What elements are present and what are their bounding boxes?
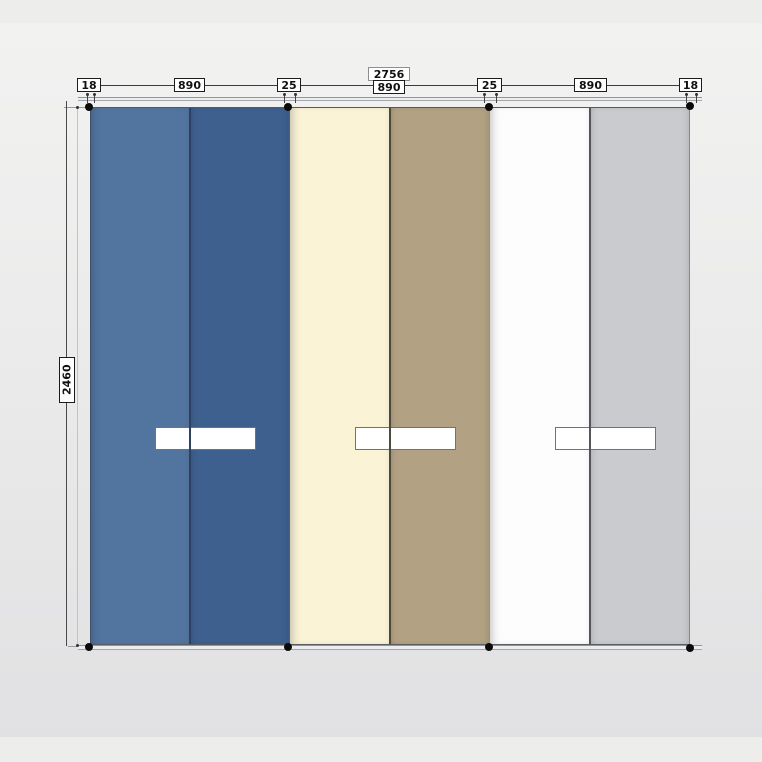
dimension-tick [87,93,88,103]
dimension-tick [295,93,296,103]
door-1-left-panel[interactable] [90,108,190,644]
dimension-tick [696,93,697,103]
corner-marker-dot [85,643,93,651]
corner-marker-dot [686,102,694,110]
top-rail [78,97,702,101]
corner-marker-dot [284,103,292,111]
door-1-center-seam [189,107,191,645]
corner-marker-dot [686,644,694,652]
door-1-handle-right [190,427,256,450]
extension-dot [76,106,79,109]
extension-dot [76,644,79,647]
dim-segment-door2: 890 [373,80,405,94]
door-2-left-panel[interactable] [290,108,390,644]
door-3-left-panel[interactable] [490,108,590,644]
dim-total-height: 2460 [59,357,75,403]
dim-segment-left-gap: 18 [77,78,101,92]
corner-marker-dot [284,643,292,651]
corner-marker-dot [485,643,493,651]
frame-right-edge [689,108,690,644]
bottom-rail [78,645,702,650]
door-gap-edge [289,108,290,644]
dim-segment-overlap1: 25 [277,78,301,92]
dimension-tick [284,93,285,103]
corner-marker-dot [85,103,93,111]
dimension-tick [686,93,687,103]
dim-segment-door1: 890 [174,78,205,92]
door-2-center-seam [389,107,391,645]
door-2-right-panel[interactable] [390,108,490,644]
height-extension-line [77,107,78,646]
door-3-center-seam [589,107,591,645]
wardrobe-configurator-view: 2756 18 890 25 890 25 890 18 2460 [0,0,762,762]
door-3-handle-right [590,427,656,450]
dim-segment-right-gap: 18 [679,78,702,92]
dimension-tick [484,93,485,103]
dimension-tick [94,93,95,103]
doors-top-edge [90,107,690,108]
door-1-right-panel[interactable] [190,108,290,644]
dim-segment-overlap2: 25 [477,78,502,92]
door-1-handle-left [155,427,190,450]
doors-bottom-edge [90,644,690,645]
door-2-handle-left [355,427,390,450]
door-3-right-panel[interactable] [590,108,690,644]
dimension-tick [496,93,497,103]
dim-total-width: 2756 [368,67,410,81]
frame-left-edge [90,108,91,644]
door-gap-edge [489,108,490,644]
door-3-handle-left [555,427,590,450]
dim-segment-door3: 890 [574,78,607,92]
door-2-handle-right [390,427,456,450]
corner-marker-dot [485,103,493,111]
